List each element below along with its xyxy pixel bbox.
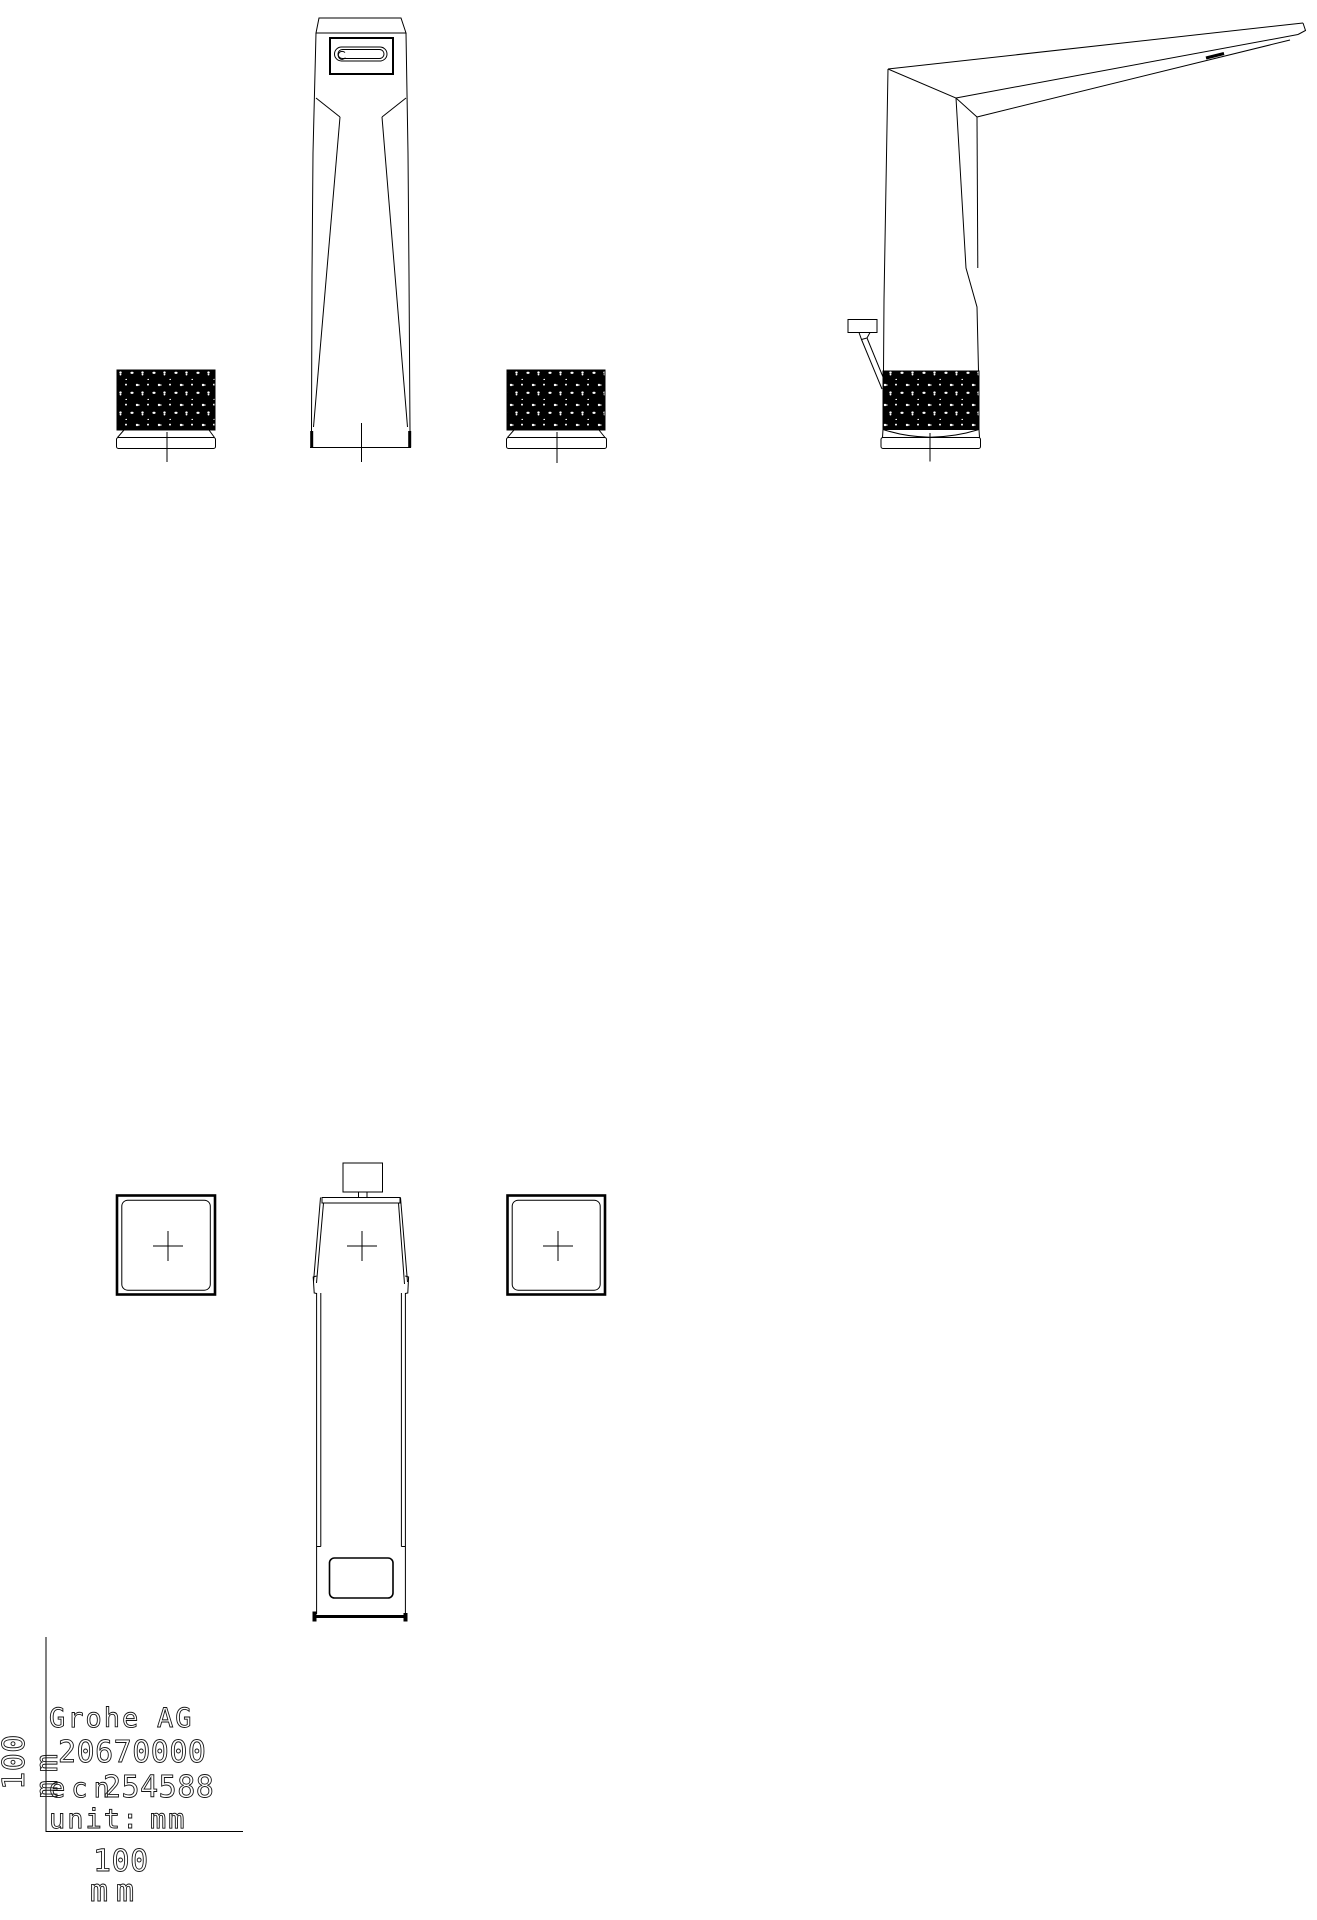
handle-left-plan	[117, 1196, 215, 1295]
knurled-grip	[117, 370, 215, 430]
side-view-drawing	[848, 23, 1306, 462]
handle-right-plan	[508, 1196, 606, 1295]
vertical-scale-value-text: 100	[0, 1734, 32, 1790]
brand-text: Grohe	[49, 1703, 140, 1734]
spout-plan	[313, 1163, 408, 1622]
brand-suffix-text: AG	[157, 1703, 194, 1734]
handle-left-front	[117, 370, 216, 462]
unit-value-text: mm	[150, 1804, 187, 1835]
center-cross	[543, 1231, 573, 1261]
handle-right-front	[507, 370, 607, 463]
spout-front	[310, 18, 411, 462]
knurled-grip	[507, 370, 605, 430]
plan-view-drawing	[117, 1163, 605, 1622]
center-cross	[347, 1231, 377, 1261]
ecn-number-text: 254588	[103, 1770, 214, 1805]
title-block: Grohe AG 20670000 ecn 254588 unit: mm 10…	[0, 1637, 243, 1909]
front-view-drawing	[117, 18, 607, 463]
spout-side	[884, 23, 1306, 371]
knurled-grip	[883, 371, 979, 430]
horizontal-scale-unit-text: mm	[90, 1874, 142, 1909]
vertical-scale-unit-text: mm	[30, 1746, 65, 1798]
spout-mouth-plan	[330, 1558, 394, 1598]
drawing-sheet: Grohe AG 20670000 ecn 254588 unit: mm 10…	[0, 0, 1317, 1920]
handle-escutcheon-side	[881, 371, 981, 462]
center-cross	[153, 1231, 183, 1261]
cad-drawing: Grohe AG 20670000 ecn 254588 unit: mm 10…	[0, 0, 1317, 1920]
spout-tip-plan	[343, 1163, 383, 1192]
product-number-text: 20670000	[58, 1735, 207, 1770]
lever-side	[848, 320, 887, 390]
unit-label-text: unit:	[49, 1804, 140, 1835]
